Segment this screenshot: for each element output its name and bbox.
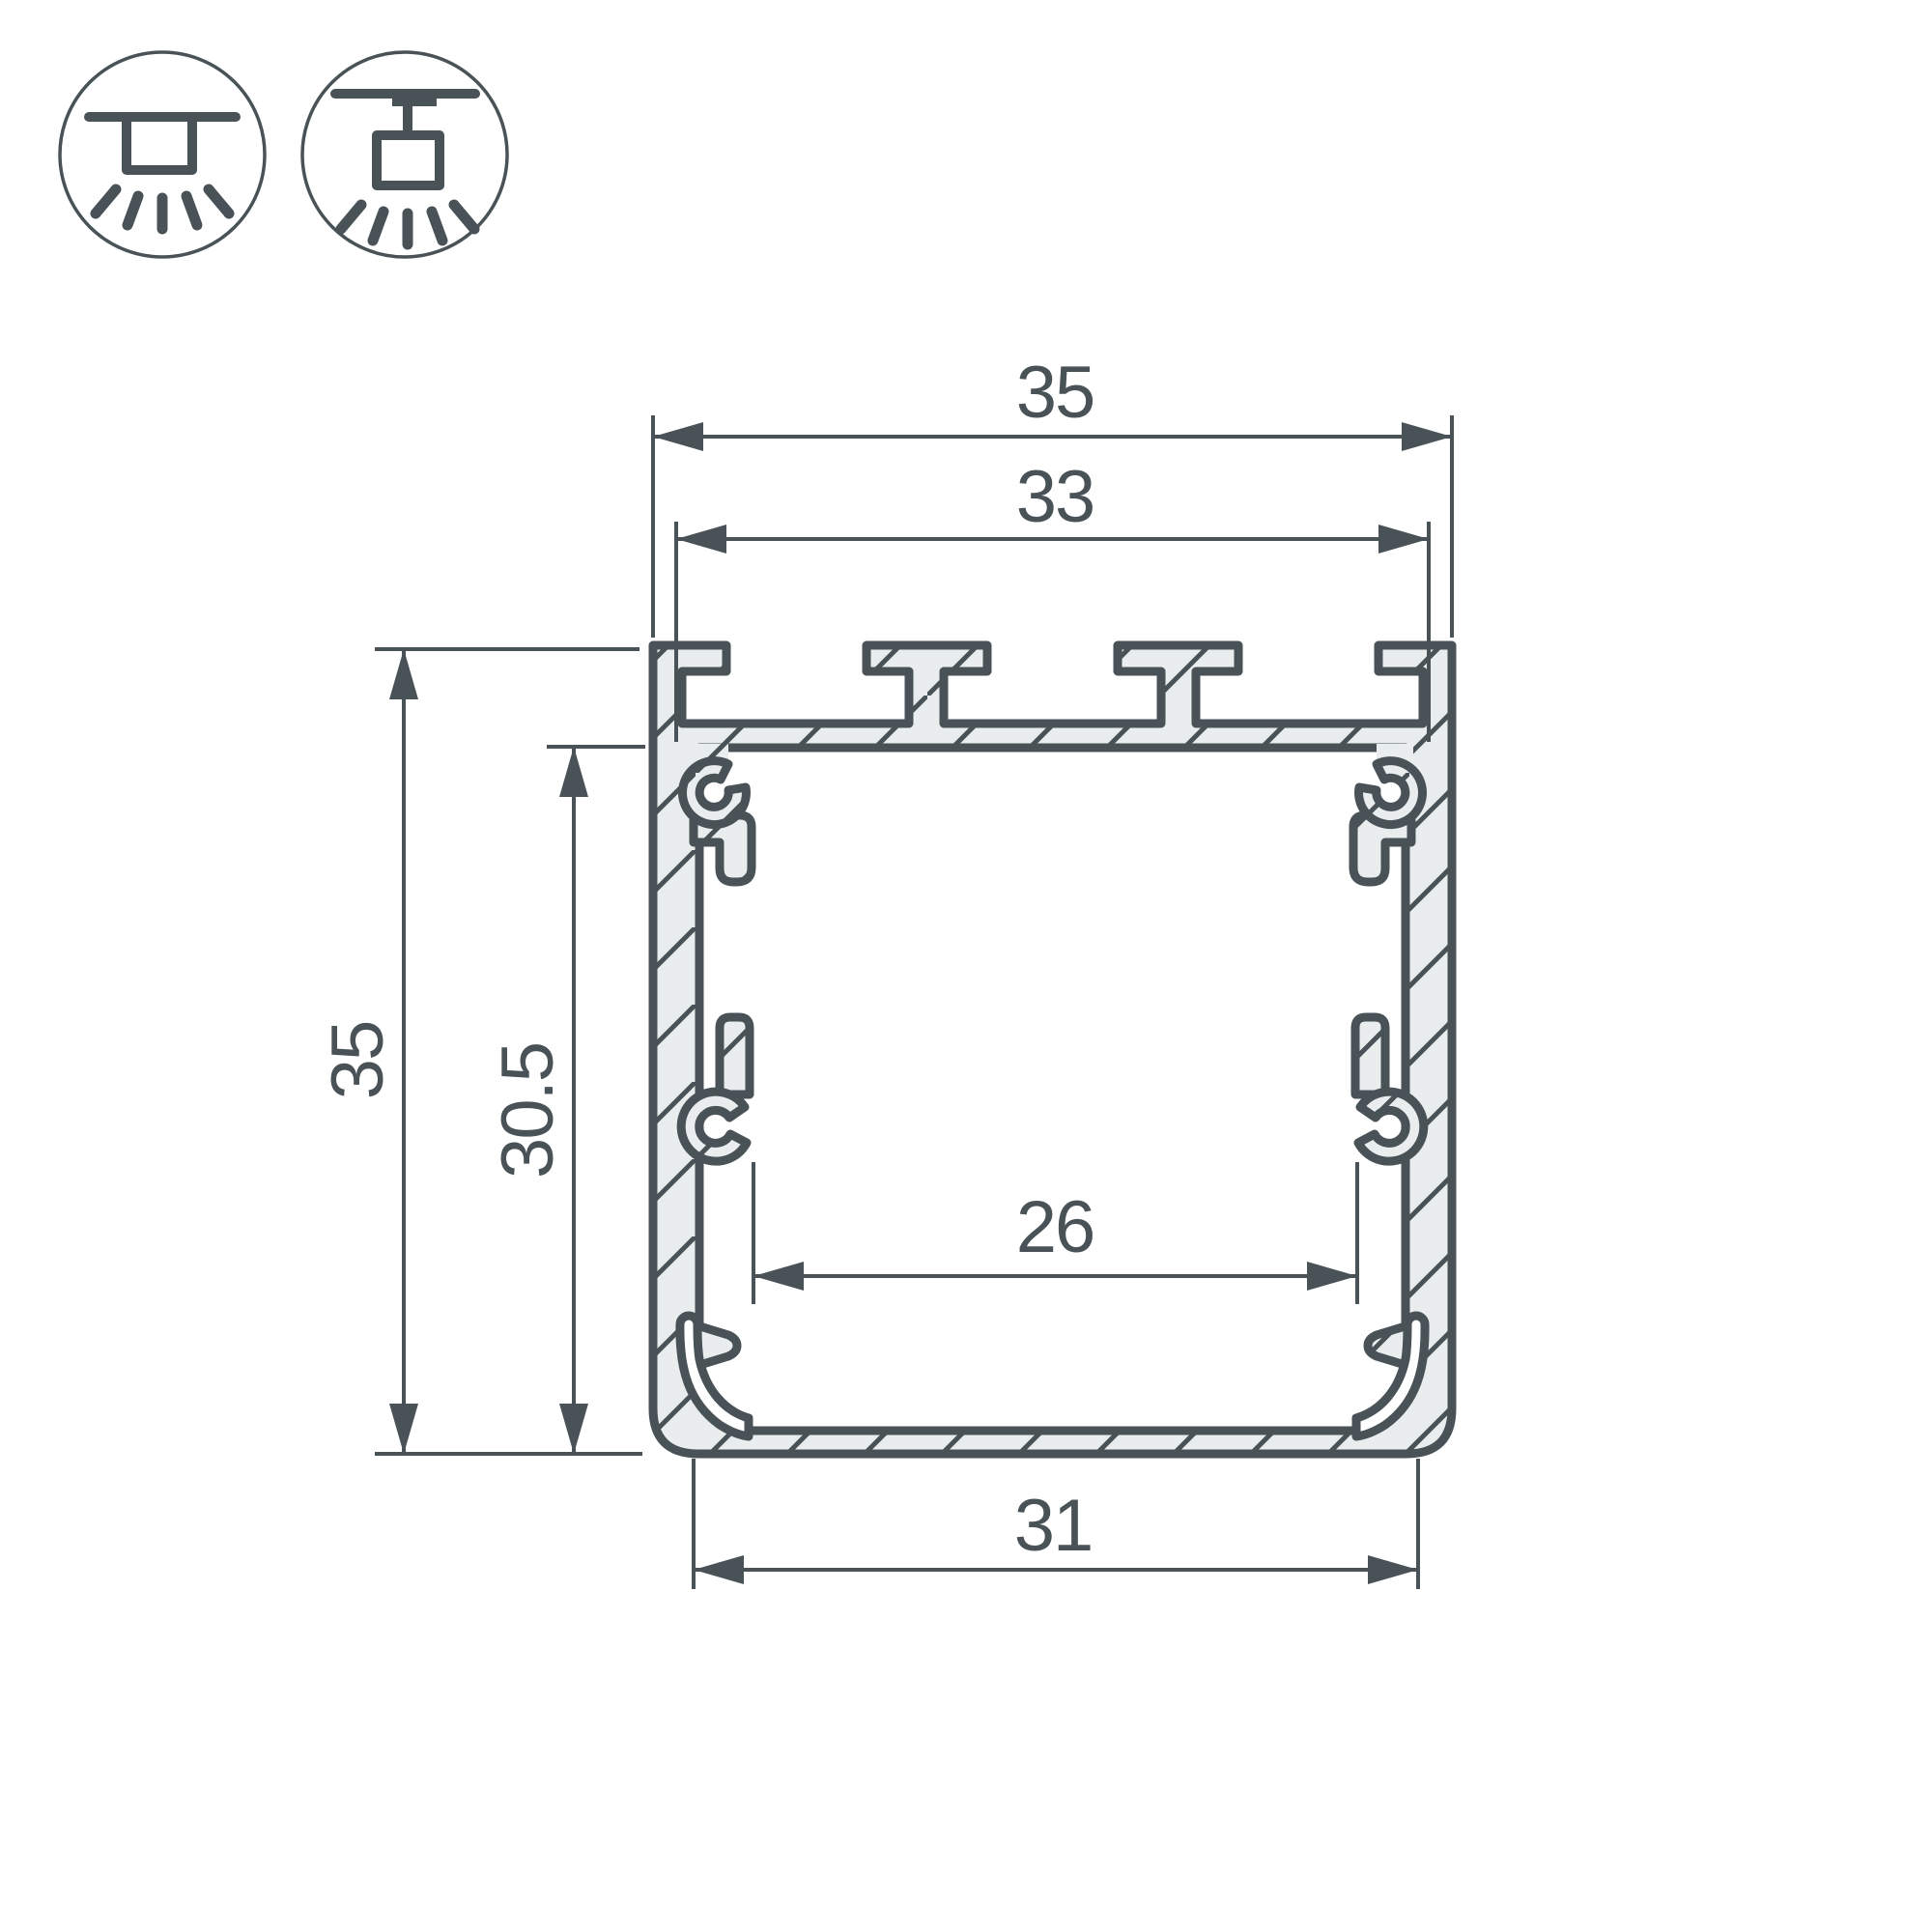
dim-label-bottom-width: 31 [1014,1485,1093,1567]
profile-box [377,135,440,185]
light-rays [96,189,229,229]
arrowhead [1378,525,1429,554]
surface-mount-icon [60,52,265,257]
mount-type-icons [60,52,507,257]
arrowhead [1368,1555,1418,1584]
arrowhead [753,1262,804,1291]
profile-cross-section-drawing: 35 33 35 30.5 [0,0,1932,1932]
dim-bottom-width: 31 [694,1459,1418,1589]
pendant-mount-icon [302,52,507,257]
dim-label-inner-height: 30.5 [487,1043,569,1179]
arrowhead [694,1555,744,1584]
track-adapter [392,94,437,106]
dim-inner-width: 26 [753,1162,1357,1304]
dim-slot-width: 33 [676,456,1429,742]
arrowhead [559,747,588,797]
arrowhead [1307,1262,1357,1291]
dimension-annotations: 35 33 35 30.5 [317,352,1452,1589]
arrowhead [389,1404,418,1454]
dim-label-inner-width: 26 [1016,1186,1094,1268]
arrowhead [389,649,418,699]
drawing-canvas: 35 33 35 30.5 [0,0,1932,1932]
arrowhead [559,1404,588,1454]
dim-outer-height: 35 [317,649,642,1454]
arrowhead [1402,422,1452,451]
profile-body [653,645,1452,1454]
profile-box [127,117,192,170]
arrowhead [653,422,703,451]
extrusion-section [653,645,1452,1454]
dim-label-outer-height: 35 [317,1022,399,1100]
arrowhead [676,525,726,554]
dim-inner-height: 30.5 [487,747,645,1454]
dim-label-outer-width: 35 [1016,352,1094,434]
dim-label-slot-width: 33 [1016,456,1094,538]
light-rays [341,205,474,244]
